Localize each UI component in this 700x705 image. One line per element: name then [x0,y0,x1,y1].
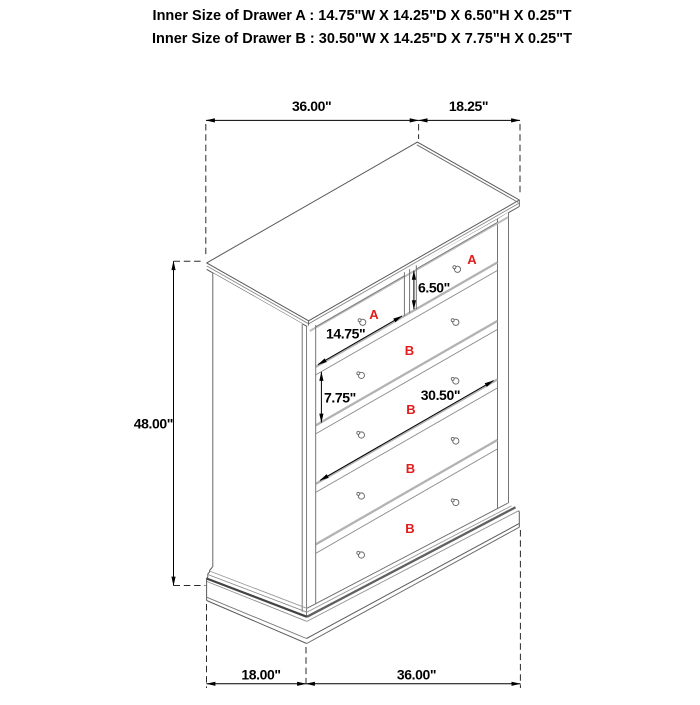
svg-text:B: B [406,402,415,417]
svg-text:Inner Size of Drawer B : 30.50: Inner Size of Drawer B : 30.50"W X 14.25… [152,31,572,47]
svg-text:7.75": 7.75" [324,389,356,405]
svg-text:36.00": 36.00" [292,98,331,114]
svg-text:30.50": 30.50" [421,387,460,403]
svg-text:A: A [369,307,379,322]
svg-text:36.00": 36.00" [397,666,436,682]
svg-text:B: B [406,461,415,476]
svg-text:18.25": 18.25" [449,98,488,114]
svg-text:14.75": 14.75" [326,326,365,342]
svg-text:48.00": 48.00" [134,416,173,432]
svg-text:A: A [467,252,477,267]
svg-text:Inner Size of Drawer A : 14.75: Inner Size of Drawer A : 14.75"W X 14.25… [153,8,572,24]
svg-text:B: B [405,343,414,358]
svg-text:6.50": 6.50" [418,280,450,296]
svg-text:B: B [405,521,414,536]
svg-text:18.00": 18.00" [241,666,280,682]
